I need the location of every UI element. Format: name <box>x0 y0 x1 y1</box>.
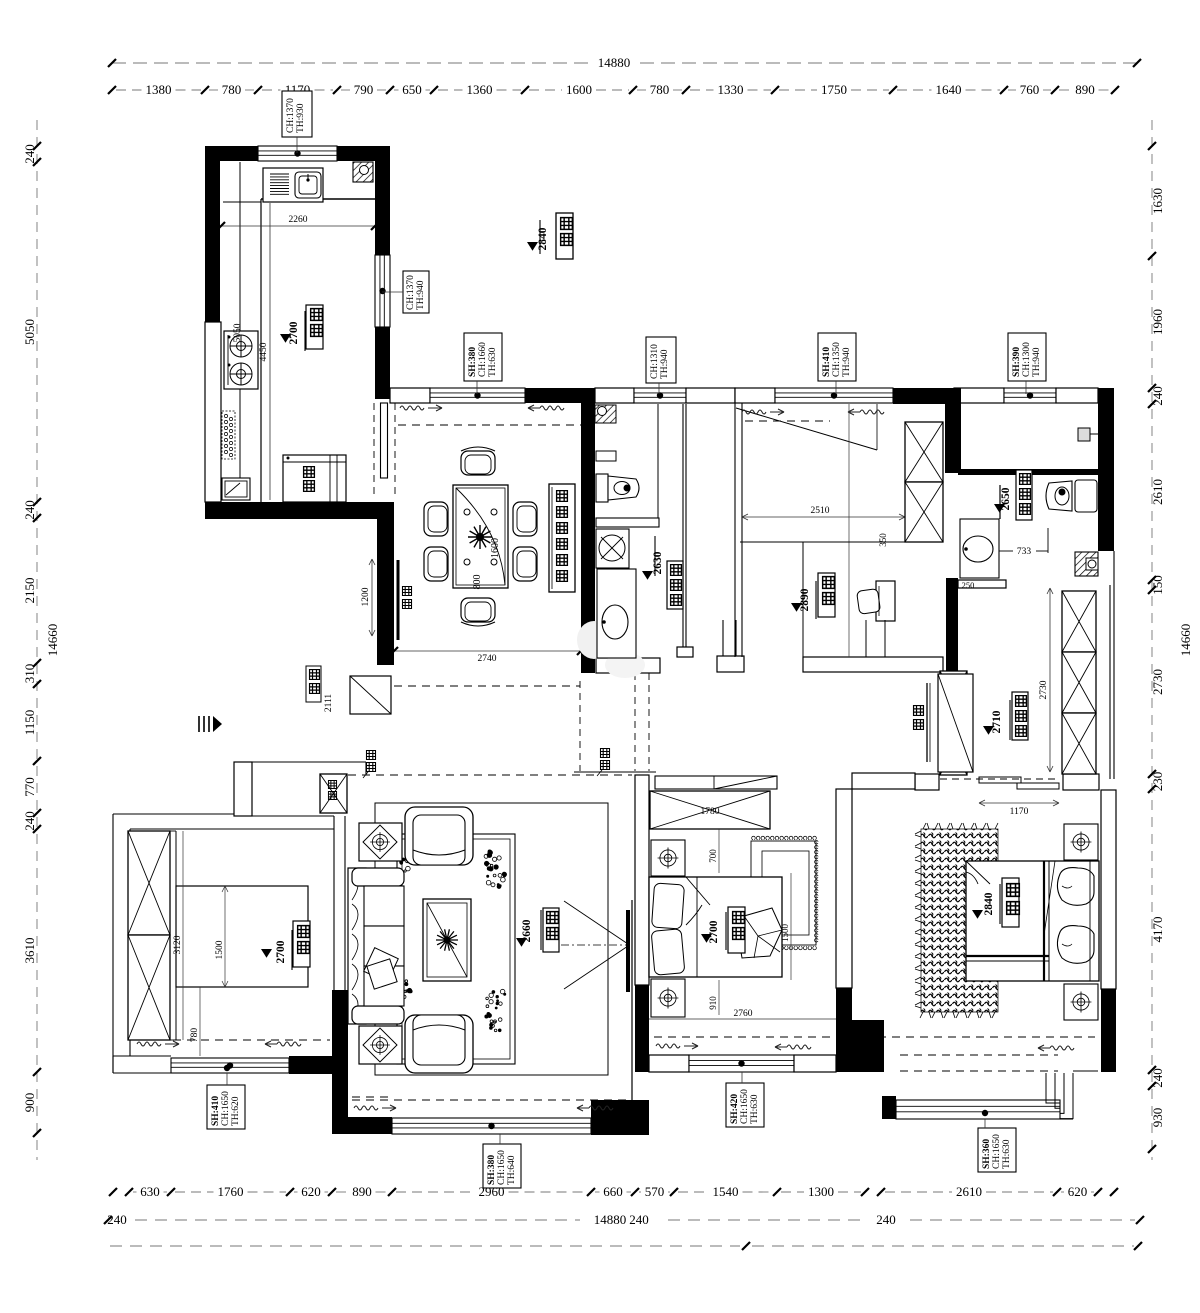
svg-text:3120: 3120 <box>173 935 183 954</box>
svg-text:620: 620 <box>301 1184 321 1199</box>
svg-text:14880: 14880 <box>598 55 631 70</box>
svg-text:SH:420: SH:420 <box>730 1094 740 1124</box>
svg-text:250: 250 <box>962 580 975 590</box>
svg-text:1300: 1300 <box>808 1184 834 1199</box>
svg-text:SH:360: SH:360 <box>982 1139 992 1169</box>
svg-text:TH:640: TH:640 <box>507 1155 517 1185</box>
svg-text:1540: 1540 <box>713 1184 739 1199</box>
svg-text:2890: 2890 <box>799 588 811 611</box>
svg-text:CH:1370: CH:1370 <box>286 98 296 133</box>
svg-text:SH:380: SH:380 <box>487 1155 497 1185</box>
svg-text:2150: 2150 <box>22 578 37 604</box>
svg-text:4450: 4450 <box>259 342 269 361</box>
svg-text:1600: 1600 <box>566 82 592 97</box>
svg-text:900: 900 <box>22 1093 37 1113</box>
svg-text:240: 240 <box>629 1212 649 1227</box>
svg-text:TH:940: TH:940 <box>660 349 670 379</box>
svg-text:760: 760 <box>1020 82 1040 97</box>
svg-text:2840: 2840 <box>983 892 995 915</box>
svg-text:TH:630: TH:630 <box>750 1094 760 1124</box>
svg-text:2630: 2630 <box>652 551 664 574</box>
svg-text:790: 790 <box>354 82 374 97</box>
svg-text:240: 240 <box>22 500 37 520</box>
svg-text:2700: 2700 <box>708 920 720 943</box>
svg-text:TH:630: TH:630 <box>488 347 498 377</box>
svg-text:5050: 5050 <box>22 319 37 345</box>
svg-text:2730: 2730 <box>1150 669 1165 695</box>
svg-text:350: 350 <box>878 533 888 547</box>
svg-text:14880: 14880 <box>594 1212 627 1227</box>
svg-text:620: 620 <box>1068 1184 1088 1199</box>
svg-text:660: 660 <box>603 1184 623 1199</box>
svg-text:2510: 2510 <box>811 506 830 516</box>
svg-text:CH:1650: CH:1650 <box>497 1150 507 1185</box>
svg-text:5050: 5050 <box>233 323 243 342</box>
svg-text:733: 733 <box>1017 547 1032 557</box>
svg-text:CH:1300: CH:1300 <box>1022 342 1032 377</box>
svg-text:1360: 1360 <box>467 82 493 97</box>
svg-text:1750: 1750 <box>821 82 847 97</box>
svg-text:2730: 2730 <box>1039 680 1049 699</box>
svg-text:700: 700 <box>708 849 718 863</box>
svg-text:TH:630: TH:630 <box>1002 1139 1012 1169</box>
svg-text:930: 930 <box>1150 1108 1165 1128</box>
svg-text:CH:1650: CH:1650 <box>992 1134 1002 1169</box>
svg-text:1200: 1200 <box>361 587 371 606</box>
svg-text:780: 780 <box>190 1028 200 1043</box>
svg-text:CH:1350: CH:1350 <box>832 342 842 377</box>
svg-text:1150: 1150 <box>22 710 37 736</box>
svg-text:TH:620: TH:620 <box>231 1096 241 1126</box>
svg-text:1170: 1170 <box>1010 807 1029 817</box>
svg-text:1640: 1640 <box>936 82 962 97</box>
svg-text:CH:1370: CH:1370 <box>406 275 416 310</box>
svg-text:TH:940: TH:940 <box>1032 347 1042 377</box>
svg-text:780: 780 <box>222 82 242 97</box>
svg-text:SH:410: SH:410 <box>211 1096 221 1126</box>
svg-text:TH:940: TH:940 <box>842 347 852 377</box>
svg-text:570: 570 <box>645 1184 665 1199</box>
svg-text:2740: 2740 <box>478 654 497 664</box>
svg-text:1630: 1630 <box>1150 188 1165 214</box>
svg-text:240: 240 <box>1150 1068 1165 1088</box>
svg-text:780: 780 <box>650 82 670 97</box>
svg-text:2710: 2710 <box>991 710 1003 733</box>
svg-text:2760: 2760 <box>734 1009 753 1019</box>
svg-text:150: 150 <box>1150 575 1165 595</box>
svg-text:240: 240 <box>107 1212 127 1227</box>
svg-text:770: 770 <box>22 777 37 797</box>
svg-text:2610: 2610 <box>956 1184 982 1199</box>
svg-text:SH:390: SH:390 <box>1012 347 1022 377</box>
svg-text:2260: 2260 <box>289 215 308 225</box>
svg-text:2840: 2840 <box>537 227 549 250</box>
svg-text:TH:930: TH:930 <box>296 103 306 133</box>
svg-text:SH:380: SH:380 <box>468 347 478 377</box>
svg-text:800: 800 <box>472 575 483 590</box>
svg-text:910: 910 <box>708 996 718 1010</box>
svg-text:1780: 1780 <box>701 807 720 817</box>
svg-text:CH:1650: CH:1650 <box>221 1091 231 1126</box>
svg-text:230: 230 <box>1150 772 1165 792</box>
svg-text:3610: 3610 <box>22 938 37 964</box>
svg-text:1330: 1330 <box>718 82 744 97</box>
svg-text:2610: 2610 <box>1150 479 1165 505</box>
svg-text:310: 310 <box>22 664 37 684</box>
svg-text:CH:1650: CH:1650 <box>740 1089 750 1124</box>
svg-text:SH:410: SH:410 <box>822 347 832 377</box>
svg-text:1600: 1600 <box>490 538 501 558</box>
svg-text:TH:940: TH:940 <box>416 280 426 310</box>
svg-text:240: 240 <box>876 1212 896 1227</box>
svg-text:1960: 1960 <box>1150 309 1165 335</box>
svg-text:1500: 1500 <box>780 924 790 943</box>
svg-text:1500: 1500 <box>215 940 225 959</box>
svg-text:650: 650 <box>402 82 422 97</box>
svg-text:240: 240 <box>1150 386 1165 406</box>
svg-text:14660: 14660 <box>1178 624 1193 657</box>
svg-text:4170: 4170 <box>1150 917 1165 943</box>
svg-text:CH:1310: CH:1310 <box>650 344 660 379</box>
svg-text:240: 240 <box>22 811 37 831</box>
svg-text:2111: 2111 <box>324 694 334 713</box>
svg-text:14660: 14660 <box>45 624 60 657</box>
svg-text:890: 890 <box>1075 82 1095 97</box>
svg-text:CH:1660: CH:1660 <box>478 342 488 377</box>
svg-text:2700: 2700 <box>288 321 300 344</box>
svg-text:630: 630 <box>140 1184 160 1199</box>
svg-text:890: 890 <box>352 1184 372 1199</box>
svg-text:240: 240 <box>22 144 37 164</box>
svg-text:1380: 1380 <box>146 82 172 97</box>
svg-text:2700: 2700 <box>275 940 287 963</box>
svg-text:1760: 1760 <box>218 1184 244 1199</box>
